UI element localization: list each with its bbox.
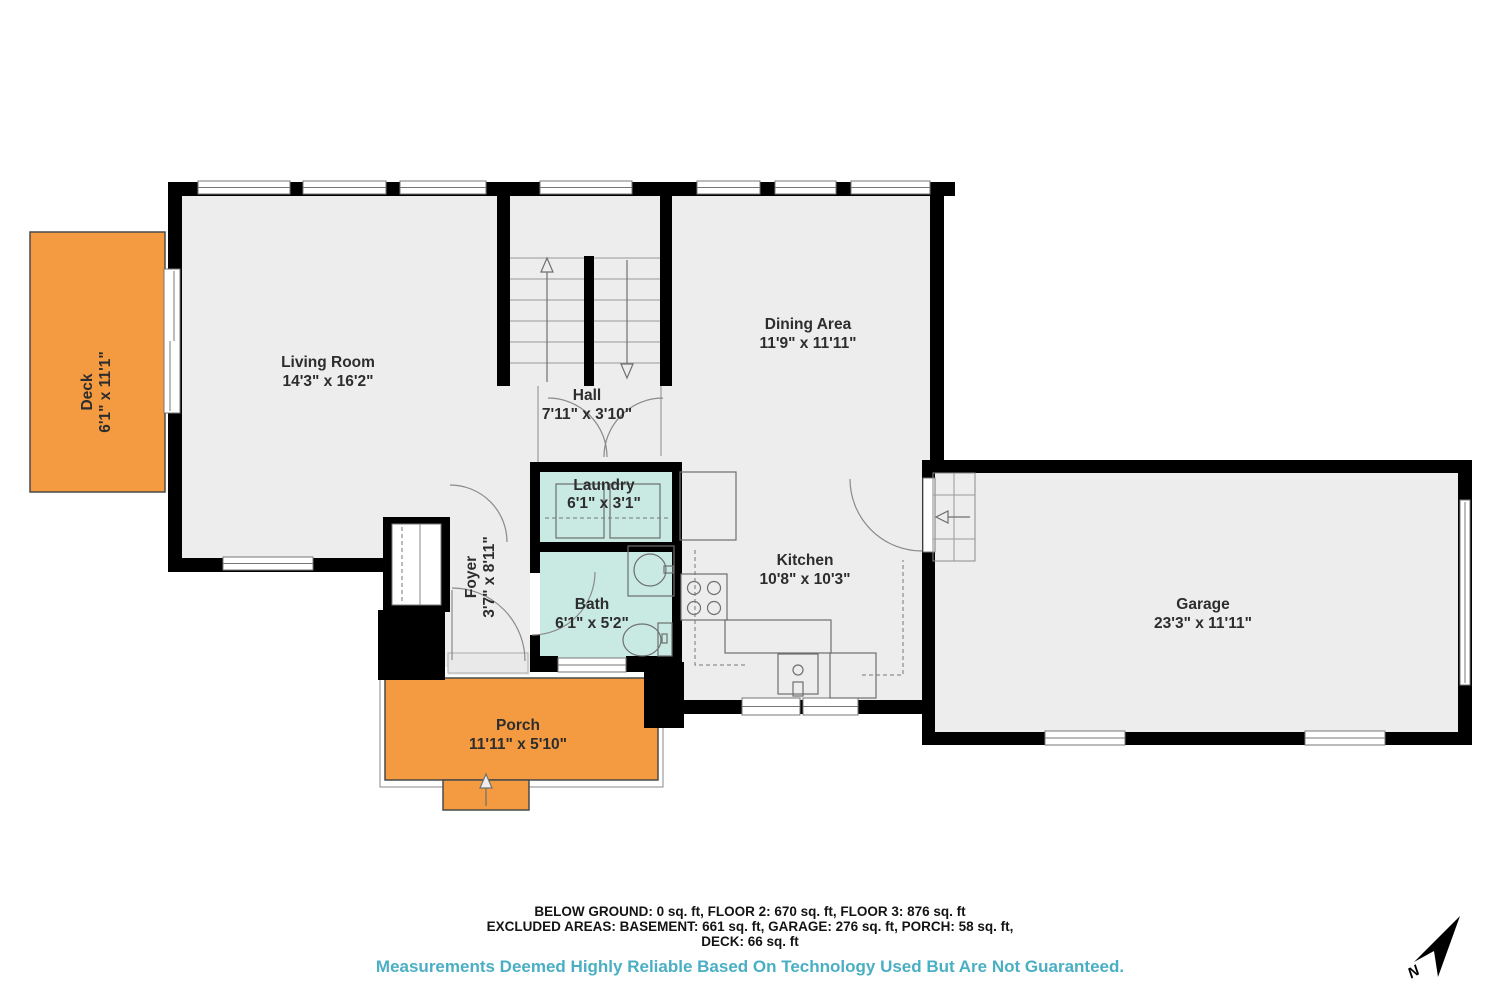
room-dims: 3'7" x 8'11" — [481, 536, 498, 618]
area-summary-line2: EXCLUDED AREAS: BASEMENT: 661 sq. ft, GA… — [487, 919, 1014, 934]
floor-plan-drawing: Living Room 14'3" x 16'2" Dining Area 11… — [0, 0, 1500, 1000]
wall-porch-kitchen-corner — [644, 662, 684, 728]
wall-garage-top — [922, 460, 1472, 473]
wall-laundry-bath-divider — [536, 542, 676, 552]
sliding-door-deck — [164, 269, 180, 413]
window — [400, 181, 486, 194]
window — [303, 181, 386, 194]
compass: N — [1405, 916, 1460, 982]
window — [1045, 731, 1125, 745]
disclaimer-text: Measurements Deemed Highly Reliable Base… — [376, 957, 1124, 976]
room-dims: 11'11" x 5'10" — [469, 736, 567, 753]
window — [540, 181, 632, 194]
area-summary-line3: DECK: 66 sq. ft — [701, 934, 799, 949]
room-dims: 10'8" x 10'3" — [759, 571, 850, 588]
room-name: Deck — [79, 373, 96, 410]
window — [803, 698, 858, 715]
room-dims: 6'1" x 3'1" — [567, 495, 641, 512]
room-name: Porch — [496, 717, 540, 734]
wall-bath-bottom-a — [530, 656, 558, 672]
window — [851, 181, 930, 194]
north-arrow-icon — [1414, 916, 1460, 977]
room-dims: 23'3" x 11'11" — [1154, 615, 1252, 632]
room-name: Laundry — [573, 477, 635, 494]
window — [742, 698, 800, 715]
window — [223, 557, 313, 570]
compass-label: N — [1405, 961, 1424, 982]
wall-garage-bottom — [922, 732, 1472, 745]
room-name: Kitchen — [777, 552, 834, 569]
window — [775, 181, 836, 194]
window — [697, 181, 760, 194]
floor-areas — [30, 196, 1458, 810]
room-name: Hall — [573, 387, 601, 404]
stove — [681, 574, 727, 620]
window — [558, 658, 626, 672]
wall-bath-left — [530, 462, 540, 670]
bath-door-opening — [530, 573, 540, 635]
garage-vehicle-door — [1460, 500, 1470, 685]
room-name: Foyer — [463, 556, 480, 598]
wall-stair-left — [497, 195, 510, 386]
front-door-threshold — [448, 653, 528, 673]
wall-dining-right — [930, 182, 944, 473]
footer: BELOW GROUND: 0 sq. ft, FLOOR 2: 670 sq.… — [376, 904, 1124, 976]
foyer-closet-interior — [392, 524, 441, 605]
room-name: Living Room — [281, 354, 375, 371]
room-name: Bath — [575, 596, 609, 613]
room-dims: 11'9" x 11'11" — [759, 335, 856, 352]
laundry-label: Laundry 6'1" x 3'1" — [567, 477, 641, 512]
room-name: Dining Area — [765, 316, 852, 333]
floor-plan-page: Living Room 14'3" x 16'2" Dining Area 11… — [0, 0, 1500, 1000]
wall-stair-right — [660, 195, 672, 386]
room-name: Garage — [1176, 596, 1230, 613]
area-summary-line1: BELOW GROUND: 0 sq. ft, FLOOR 2: 670 sq.… — [534, 904, 966, 919]
room-dims: 6'1" x 5'2" — [555, 615, 629, 632]
wall-stair-divider — [584, 256, 594, 386]
window — [198, 181, 290, 194]
room-dims: 14'3" x 16'2" — [282, 373, 373, 390]
room-dims: 7'11" x 3'10" — [542, 406, 632, 423]
wall-foyer-left-block — [378, 610, 445, 680]
window — [1305, 731, 1385, 745]
wall-laundry-top — [530, 462, 682, 472]
room-dims: 6'1" x 11'1" — [97, 351, 114, 433]
